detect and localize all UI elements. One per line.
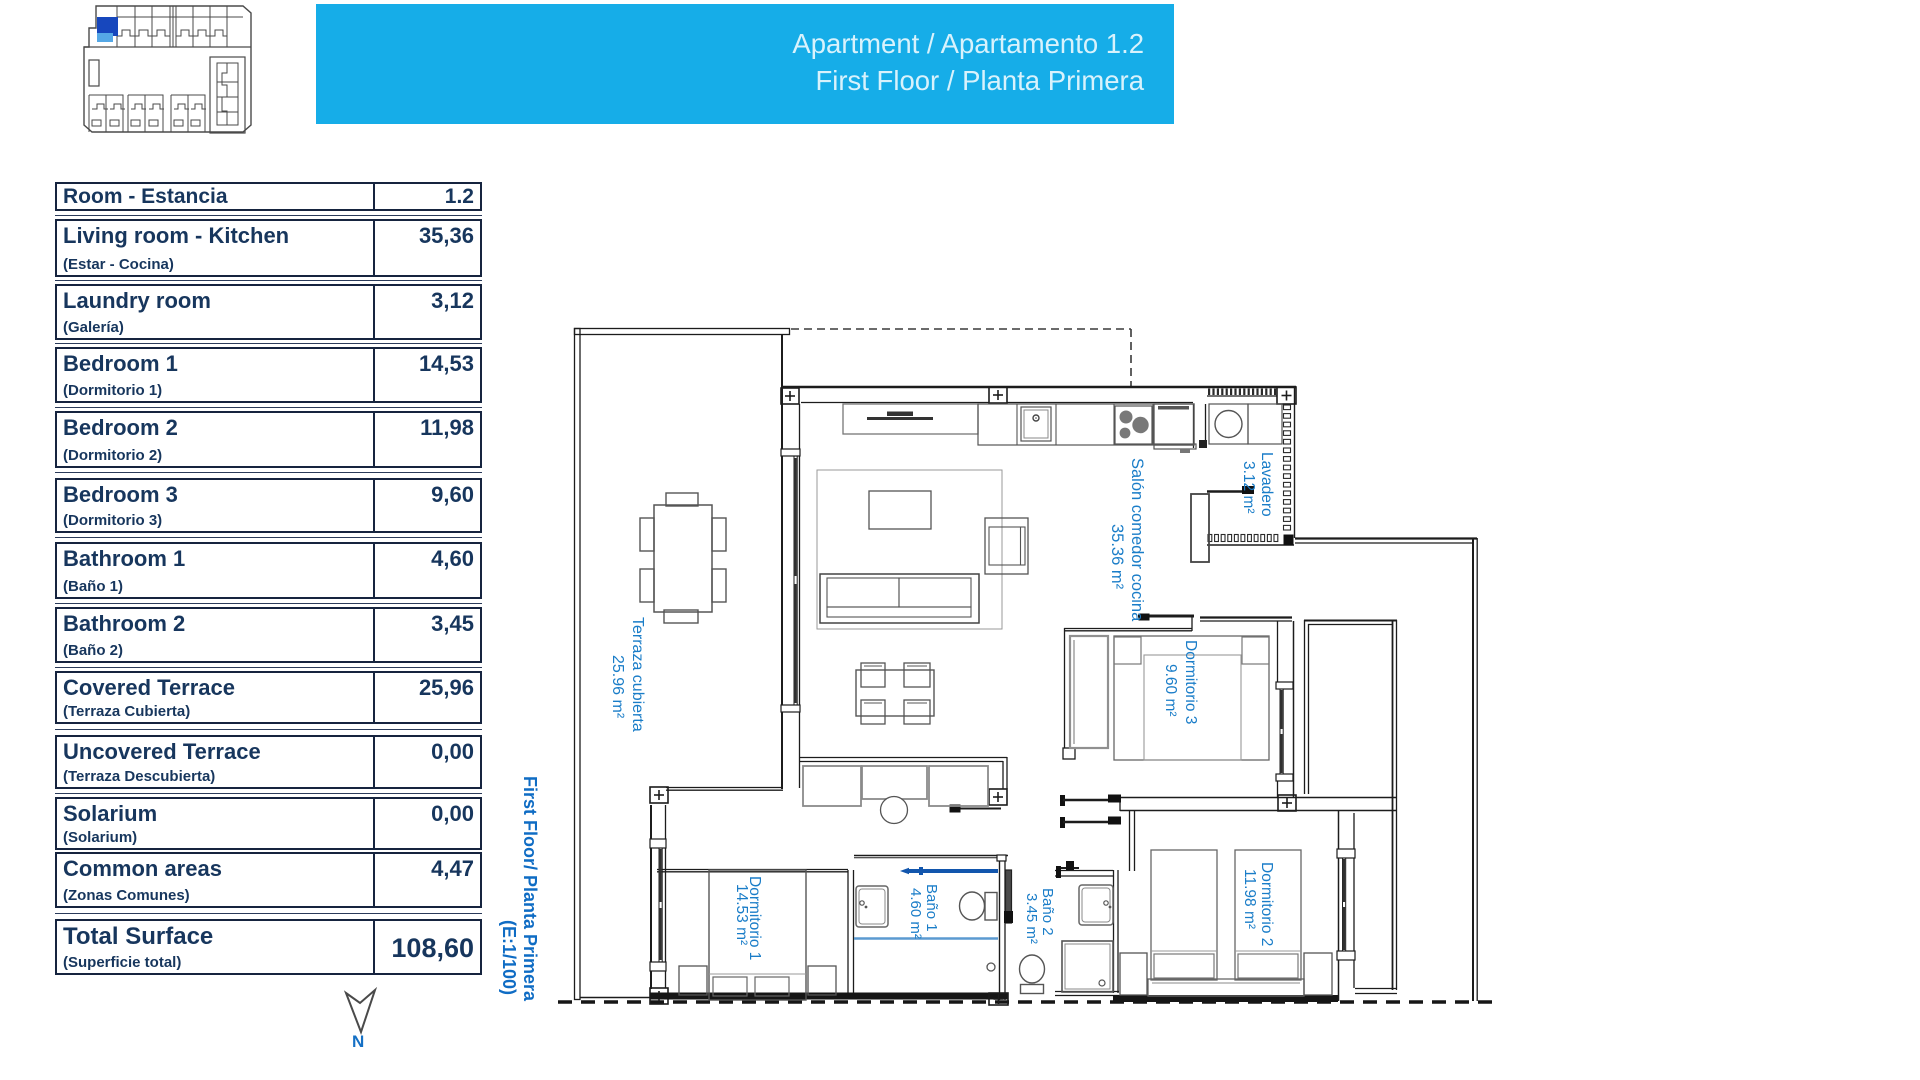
svg-text:Baño 1: Baño 1 [923, 884, 940, 932]
svg-text:Dormitorio 2: Dormitorio 2 [1258, 862, 1275, 946]
svg-text:Terraza cubierta: Terraza cubierta [629, 617, 646, 732]
svg-text:35.36 m²: 35.36 m² [1108, 524, 1126, 590]
svg-text:4.60 m²: 4.60 m² [907, 888, 924, 939]
svg-text:11.98 m²: 11.98 m² [1241, 869, 1258, 929]
svg-text:3.12 m²: 3.12 m² [1240, 461, 1257, 514]
svg-text:3.45 m²: 3.45 m² [1023, 893, 1040, 944]
svg-text:Salón comedor cocina: Salón comedor cocina [1128, 458, 1146, 622]
svg-text:Lavadero: Lavadero [1258, 452, 1275, 517]
svg-text:14.53 m²: 14.53 m² [733, 884, 750, 945]
svg-text:9.60 m²: 9.60 m² [1162, 664, 1179, 717]
svg-text:25.96 m²: 25.96 m² [609, 655, 626, 719]
svg-text:Dormitorio 3: Dormitorio 3 [1182, 640, 1199, 724]
svg-text:Baño 2: Baño 2 [1039, 888, 1056, 936]
